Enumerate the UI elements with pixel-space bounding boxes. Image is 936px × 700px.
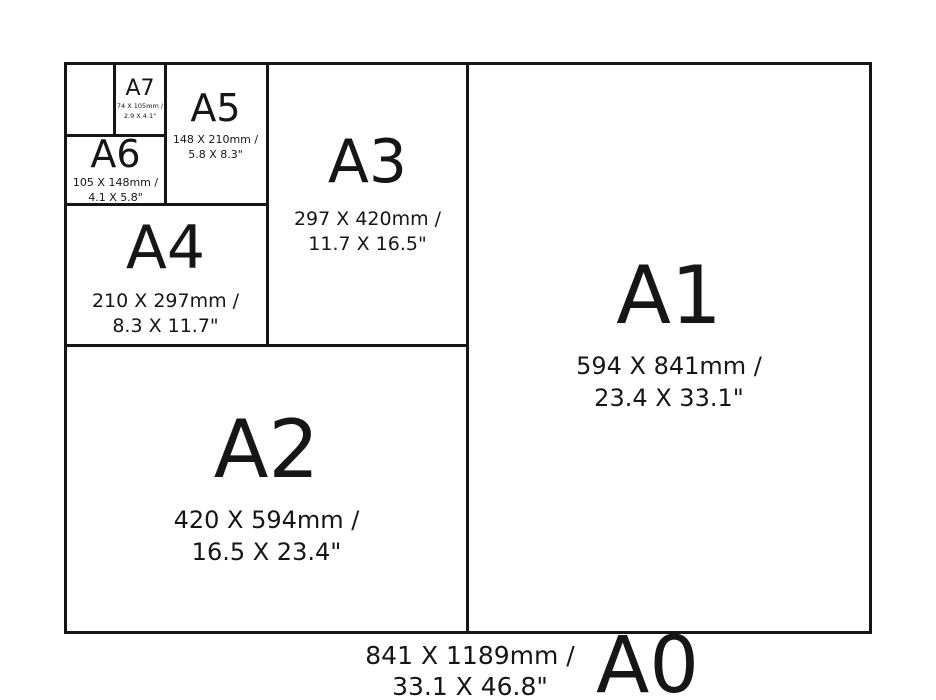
dims-inches: 11.7 X 16.5" xyxy=(294,232,441,257)
paper-size-dims-a1: 594 X 841mm / 23.4 X 33.1" xyxy=(576,351,762,413)
paper-size-dims-a6: 105 X 148mm / 4.1 X 5.8" xyxy=(73,176,158,206)
paper-size-box-empty xyxy=(67,65,113,134)
dims-mm: 420 X 594mm / xyxy=(174,505,360,536)
paper-size-label-a2: A2 xyxy=(214,410,320,490)
paper-size-label-a5: A5 xyxy=(190,89,240,127)
dims-inches: 4.1 X 5.8" xyxy=(73,191,158,206)
paper-size-dims-a4: 210 X 297mm / 8.3 X 11.7" xyxy=(92,289,239,338)
dims-inches: 16.5 X 23.4" xyxy=(174,537,360,568)
dims-inches: 8.3 X 11.7" xyxy=(92,314,239,339)
dims-inches: 2.9 X 4.1" xyxy=(117,112,163,121)
dims-mm: 594 X 841mm / xyxy=(576,351,762,382)
paper-size-label-a0: A0 xyxy=(596,627,699,700)
paper-size-dims-a3: 297 X 420mm / 11.7 X 16.5" xyxy=(294,207,441,256)
paper-size-box-a1: A1 594 X 841mm / 23.4 X 33.1" xyxy=(469,65,869,631)
paper-size-label-a3: A3 xyxy=(328,132,407,192)
paper-size-label-a6: A6 xyxy=(90,135,140,173)
dims-inches: 5.8 X 8.3" xyxy=(173,148,258,163)
paper-size-box-a4: A4 210 X 297mm / 8.3 X 11.7" xyxy=(67,206,264,344)
paper-size-box-a2: A2 420 X 594mm / 16.5 X 23.4" xyxy=(67,347,466,631)
paper-size-dims-a0: 841 X 1189mm / 33.1 X 46.8" xyxy=(305,640,635,700)
paper-size-dims-a5: 148 X 210mm / 5.8 X 8.3" xyxy=(173,133,258,163)
paper-size-label-a4: A4 xyxy=(126,218,205,278)
dims-mm: 210 X 297mm / xyxy=(92,289,239,314)
paper-size-dims-a2: 420 X 594mm / 16.5 X 23.4" xyxy=(174,505,360,567)
dims-mm: 74 X 105mm / xyxy=(117,102,163,111)
paper-size-box-a5: A5 148 X 210mm / 5.8 X 8.3" xyxy=(167,65,264,203)
paper-size-dims-a7: 74 X 105mm / 2.9 X 4.1" xyxy=(117,102,163,121)
paper-size-box-a6: A6 105 X 148mm / 4.1 X 5.8" xyxy=(67,137,164,203)
paper-size-label-a1: A1 xyxy=(616,256,722,336)
dims-mm: 105 X 148mm / xyxy=(73,176,158,191)
paper-size-label-a7: A7 xyxy=(125,78,154,100)
dims-mm: 148 X 210mm / xyxy=(173,133,258,148)
dims-inches: 23.4 X 33.1" xyxy=(576,383,762,414)
paper-size-box-a7: A7 74 X 105mm / 2.9 X 4.1" xyxy=(116,65,164,134)
paper-size-box-a3: A3 297 X 420mm / 11.7 X 16.5" xyxy=(269,65,466,344)
paper-sizes-diagram: A7 74 X 105mm / 2.9 X 4.1" A6 105 X 148m… xyxy=(0,0,936,700)
dims-mm: 841 X 1189mm / xyxy=(305,640,635,671)
dims-mm: 297 X 420mm / xyxy=(294,207,441,232)
dims-inches: 33.1 X 46.8" xyxy=(305,671,635,700)
